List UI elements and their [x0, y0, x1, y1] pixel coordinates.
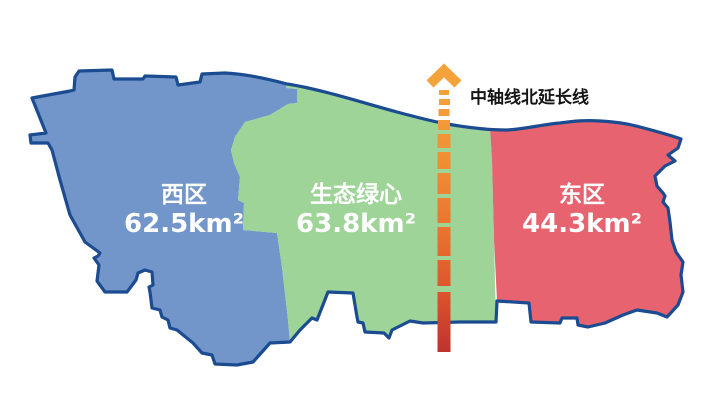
region-east-area: 44.3km²	[522, 209, 642, 239]
axis-dash	[438, 227, 451, 256]
region-green-heart-name: 生态绿心	[310, 181, 402, 208]
axis-dash	[439, 99, 450, 105]
region-east-name: 东区	[559, 181, 605, 208]
axis-dash	[438, 198, 451, 223]
axis-dash	[438, 120, 450, 130]
axis-dash	[439, 109, 450, 116]
axis-label: 中轴线北延长线	[470, 87, 589, 108]
region-west-area: 62.5km²	[124, 209, 244, 239]
region-green-heart-area: 63.8km²	[296, 209, 416, 239]
axis-dash	[438, 260, 451, 286]
axis-dash	[439, 90, 449, 95]
region-west-name: 西区	[161, 182, 207, 208]
axis-dashed-line	[438, 90, 451, 352]
axis-dash	[438, 134, 451, 148]
axis-dash	[438, 173, 451, 194]
axis-arrow-up-icon	[430, 71, 458, 85]
axis-dash	[438, 152, 451, 169]
map-canvas: 中轴线北延长线 西区 62.5km² 生态绿心 63.8km² 东区 44.3k…	[0, 0, 718, 407]
axis-dash	[438, 292, 451, 352]
infographic-map: 中轴线北延长线 西区 62.5km² 生态绿心 63.8km² 东区 44.3k…	[0, 0, 718, 407]
